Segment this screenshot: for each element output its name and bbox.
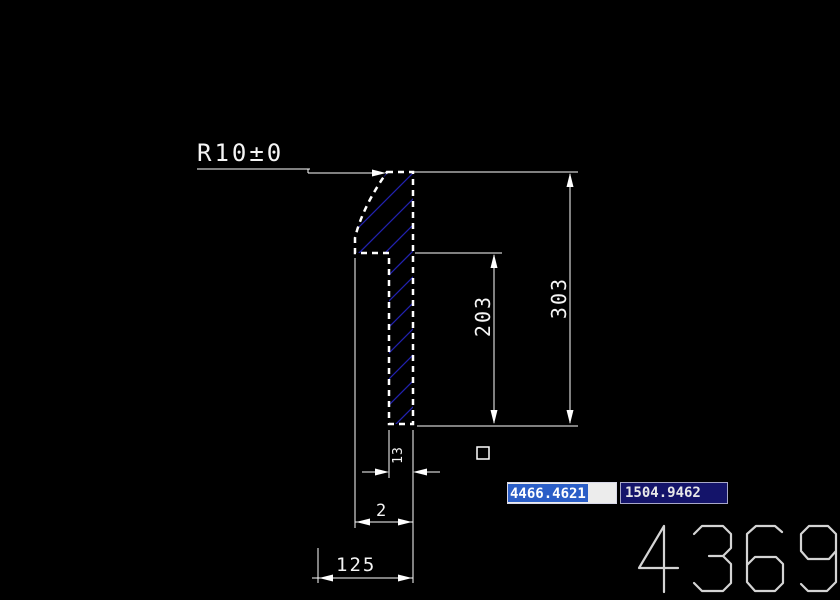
profile-outline[interactable] bbox=[355, 172, 413, 424]
cad-viewport: R10±0 303 203 bbox=[0, 0, 840, 600]
dynamic-input-x[interactable]: 4466.4621 bbox=[507, 482, 617, 504]
dynamic-input-y[interactable]: 1504.9462 bbox=[620, 482, 728, 504]
dim-text-inner-height: 203 bbox=[471, 295, 495, 337]
dynamic-input-y-value: 1504.9462 bbox=[625, 483, 701, 503]
dimension-stem-width[interactable]: 13 bbox=[362, 446, 440, 475]
dimension-base-width[interactable]: 125 bbox=[312, 554, 413, 582]
dynamic-input-x-value: 4466.4621 bbox=[508, 484, 588, 502]
radius-leader[interactable]: R10±0 bbox=[197, 139, 386, 177]
pickbox-cursor bbox=[477, 447, 489, 459]
dim-text-base-width: 125 bbox=[336, 554, 376, 576]
dimension-flange-width[interactable]: 2 bbox=[355, 501, 413, 526]
drawing-canvas[interactable]: R10±0 303 203 bbox=[0, 0, 840, 600]
dim-text-stem-width: 13 bbox=[391, 446, 406, 464]
leader-arrowhead bbox=[372, 170, 386, 177]
dim-text-flange-width: 2 bbox=[376, 501, 386, 521]
watermark-number bbox=[634, 520, 840, 598]
dimension-inner-height[interactable]: 203 bbox=[471, 254, 498, 424]
dim-text-outer-height: 303 bbox=[547, 277, 571, 319]
hatch-pattern bbox=[120, 150, 670, 440]
dimension-outer-height[interactable]: 303 bbox=[547, 173, 574, 424]
radius-label: R10±0 bbox=[197, 139, 284, 167]
